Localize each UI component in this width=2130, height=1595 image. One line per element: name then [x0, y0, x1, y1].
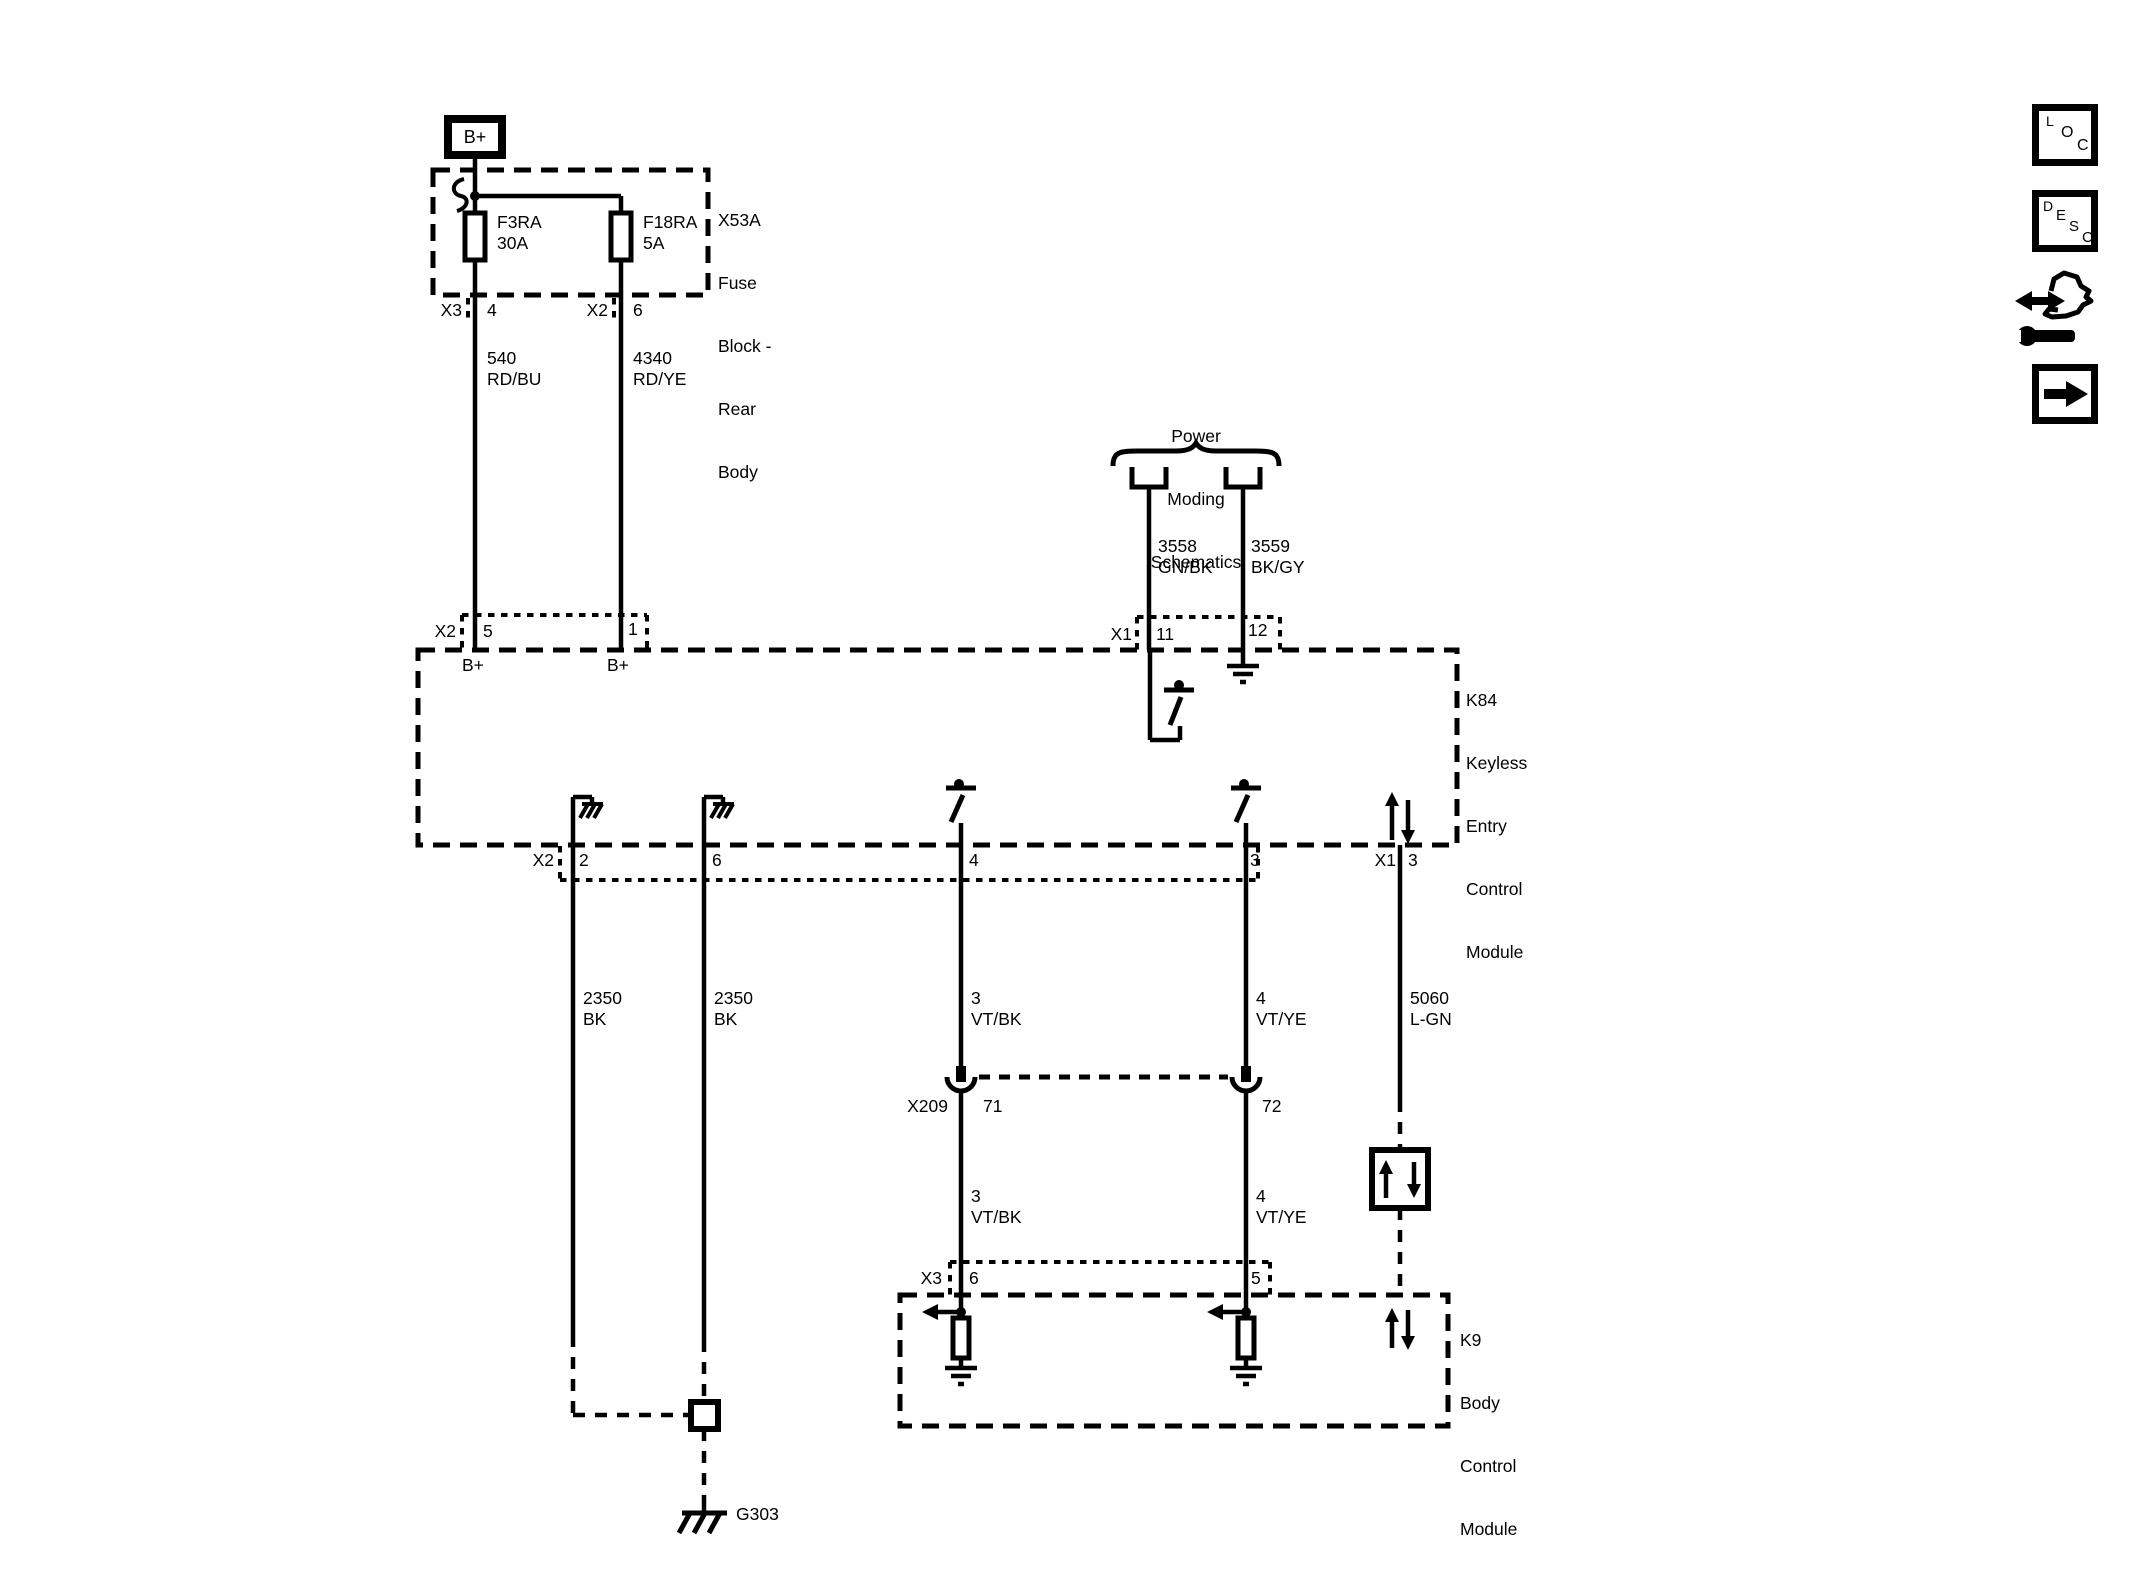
k84-internal-switch-pin3 — [1231, 779, 1261, 845]
k84-pin-11: 11 — [1156, 624, 1174, 645]
wire-circuit: 3559 — [1251, 536, 1290, 556]
x209-connector-symbols — [947, 1066, 1260, 1091]
wire-circuit: 2350 — [583, 988, 622, 1008]
fuse-f18ra-id: F18RA — [643, 212, 697, 232]
loc-button[interactable]: L O C — [2032, 104, 2098, 166]
power-moding-line: Power — [1106, 426, 1286, 447]
fuse-f3ra-symbol — [465, 213, 485, 260]
fuse-f3ra-id: F3RA — [497, 212, 542, 232]
k84-name-line: Module — [1466, 942, 1527, 963]
k84-conn-x1-top: X1 — [1096, 624, 1132, 645]
k9-pin-6: 6 — [969, 1268, 979, 1289]
fuse-block-name-line: X53A — [718, 210, 771, 231]
k9-internal-input-pin5 — [1207, 1295, 1262, 1384]
x209-pin-71: 71 — [983, 1096, 1002, 1117]
k84-internal-chassis-ground-pin2 — [573, 797, 603, 845]
x209-pin-72: 72 — [1262, 1096, 1281, 1117]
k84-pin-2: 2 — [579, 850, 589, 871]
fuse-block-name-line: Block - — [718, 336, 771, 357]
wire-4-lower-label: 4VT/YE — [1256, 1186, 1307, 1228]
k9-module-outline — [900, 1295, 1448, 1426]
wire-3-lower-label: 3VT/BK — [971, 1186, 1022, 1228]
fuse-f3ra-rating: 30A — [497, 233, 528, 253]
desc-letter: D — [2043, 198, 2053, 214]
k9-internal-input-pin6 — [922, 1295, 977, 1384]
k84-serial-data-arrows — [1385, 792, 1415, 844]
k9-pin-5: 5 — [1251, 1268, 1261, 1289]
wire-color: BK — [714, 1009, 737, 1029]
wire-2350-left — [573, 845, 689, 1415]
g303-ground-label: G303 — [736, 1504, 779, 1525]
wire-circuit: 5060 — [1410, 988, 1449, 1008]
k84-conn-x1-bottom: X1 — [1358, 850, 1396, 871]
power-moding-line: Moding — [1106, 489, 1286, 510]
fuse-pin-6: 6 — [633, 300, 643, 321]
fuse-pin-4: 4 — [487, 300, 497, 321]
wire-color: VT/BK — [971, 1009, 1022, 1029]
wire-color: RD/BU — [487, 369, 541, 389]
k84-pin-3: 3 — [1250, 850, 1260, 871]
k84-internal-chassis-ground-pin6 — [704, 797, 734, 845]
k84-pin-3-x1: 3 — [1408, 850, 1418, 871]
k84-module-name: K84 Keyless Entry Control Module — [1466, 648, 1527, 984]
k84-name-line: Entry — [1466, 816, 1527, 837]
wire-color: L-GN — [1410, 1009, 1452, 1029]
battery-positive-terminal: B+ — [444, 115, 506, 159]
k84-name-line: K84 — [1466, 690, 1527, 711]
fuse-block-name-line: Body — [718, 462, 771, 483]
wire-color: BK — [583, 1009, 606, 1029]
k84-internal-ground-pin12 — [1227, 650, 1259, 682]
wire-540-label: 540RD/BU — [487, 348, 541, 390]
k9-module-name: K9 Body Control Module — [1460, 1288, 1517, 1561]
fuse-block-name-line: Rear — [718, 399, 771, 420]
wire-circuit: 3558 — [1158, 536, 1197, 556]
wire-color: RD/YE — [633, 369, 686, 389]
k9-x3-pin-row — [950, 1262, 1270, 1295]
loc-letter: O — [2061, 124, 2073, 142]
wire-circuit: 3 — [971, 988, 981, 1008]
fuse-block-name-line: Fuse — [718, 273, 771, 294]
desc-letter: E — [2056, 207, 2066, 224]
forward-arrow-button[interactable] — [2032, 364, 2098, 424]
wiring-diagram-page: B+ F3RA30A F18RA5A X53A Fuse Block - Rea… — [0, 0, 2130, 1595]
k84-pin-5: 5 — [483, 621, 493, 642]
fuse-f18ra-symbol — [611, 213, 631, 260]
fuse-block-name: X53A Fuse Block - Rear Body — [718, 168, 771, 504]
wire-5060-label: 5060L-GN — [1410, 988, 1452, 1030]
k84-pin-6: 6 — [712, 850, 722, 871]
k84-internal-switch-pin4 — [946, 779, 976, 845]
wire-circuit: 4340 — [633, 348, 672, 368]
battery-feed-wires — [454, 159, 621, 213]
k9-name-line: Module — [1460, 1519, 1517, 1540]
k9-name-line: Control — [1460, 1456, 1517, 1477]
wire-color: VT/YE — [1256, 1009, 1307, 1029]
wire-circuit: 3 — [971, 1186, 981, 1206]
wire-3558-label: 3558GN/BK — [1158, 536, 1212, 578]
wire-circuit: 4 — [1256, 988, 1266, 1008]
wire-4-upper-label: 4VT/YE — [1256, 988, 1307, 1030]
wire-4340-label: 4340RD/YE — [633, 348, 686, 390]
wire-2350-right-label: 2350BK — [714, 988, 753, 1030]
desc-button[interactable]: D E S C — [2032, 190, 2098, 252]
wire-color: GN/BK — [1158, 557, 1212, 577]
fuse-f18ra-rating: 5A — [643, 233, 664, 253]
serial-data-link-box — [1372, 1150, 1428, 1208]
wire-3-upper-label: 3VT/BK — [971, 988, 1022, 1030]
k9-serial-data-arrows — [1385, 1308, 1415, 1350]
fuse-conn-x2: X2 — [572, 300, 608, 321]
fuse-f18ra-label: F18RA5A — [643, 212, 697, 254]
k84-pin-4: 4 — [969, 850, 979, 871]
k84-conn-x2-bottom: X2 — [514, 850, 554, 871]
repair-instructions-icon[interactable] — [2008, 273, 2091, 346]
wire-3559-label: 3559BK/GY — [1251, 536, 1305, 578]
k84-pin-1: 1 — [628, 619, 638, 640]
desc-letter: S — [2069, 218, 2079, 235]
wire-2350-left-label: 2350BK — [583, 988, 622, 1030]
wire-circuit: 4 — [1256, 1186, 1266, 1206]
desc-letter: C — [2082, 229, 2093, 246]
k9-conn-x3: X3 — [902, 1268, 942, 1289]
k9-name-line: K9 — [1460, 1330, 1517, 1351]
wire-color: VT/BK — [971, 1207, 1022, 1227]
k9-name-line: Body — [1460, 1393, 1517, 1414]
k84-pin-12: 12 — [1248, 620, 1267, 641]
k84-conn-x2-top: X2 — [418, 621, 456, 642]
k84-internal-switch-pin11 — [1150, 650, 1194, 740]
g303-ground-symbol — [679, 1429, 727, 1533]
wiring-linework — [0, 0, 2130, 1595]
fuse-conn-x3: X3 — [426, 300, 462, 321]
splice-junction-box — [691, 1402, 718, 1429]
k84-bplus-label-left: B+ — [462, 655, 484, 676]
wire-circuit: 540 — [487, 348, 516, 368]
k84-bplus-label-right: B+ — [607, 655, 629, 676]
k84-name-line: Control — [1466, 879, 1527, 900]
wire-color: VT/YE — [1256, 1207, 1307, 1227]
k84-name-line: Keyless — [1466, 753, 1527, 774]
loc-letter: L — [2046, 113, 2054, 129]
x209-connector-label: X209 — [890, 1096, 948, 1117]
loc-letter: C — [2077, 137, 2089, 155]
fuse-f3ra-label: F3RA30A — [497, 212, 542, 254]
k84-x2-bottom-pin-row — [560, 846, 1258, 880]
wire-color: BK/GY — [1251, 557, 1305, 577]
wire-circuit: 2350 — [714, 988, 753, 1008]
